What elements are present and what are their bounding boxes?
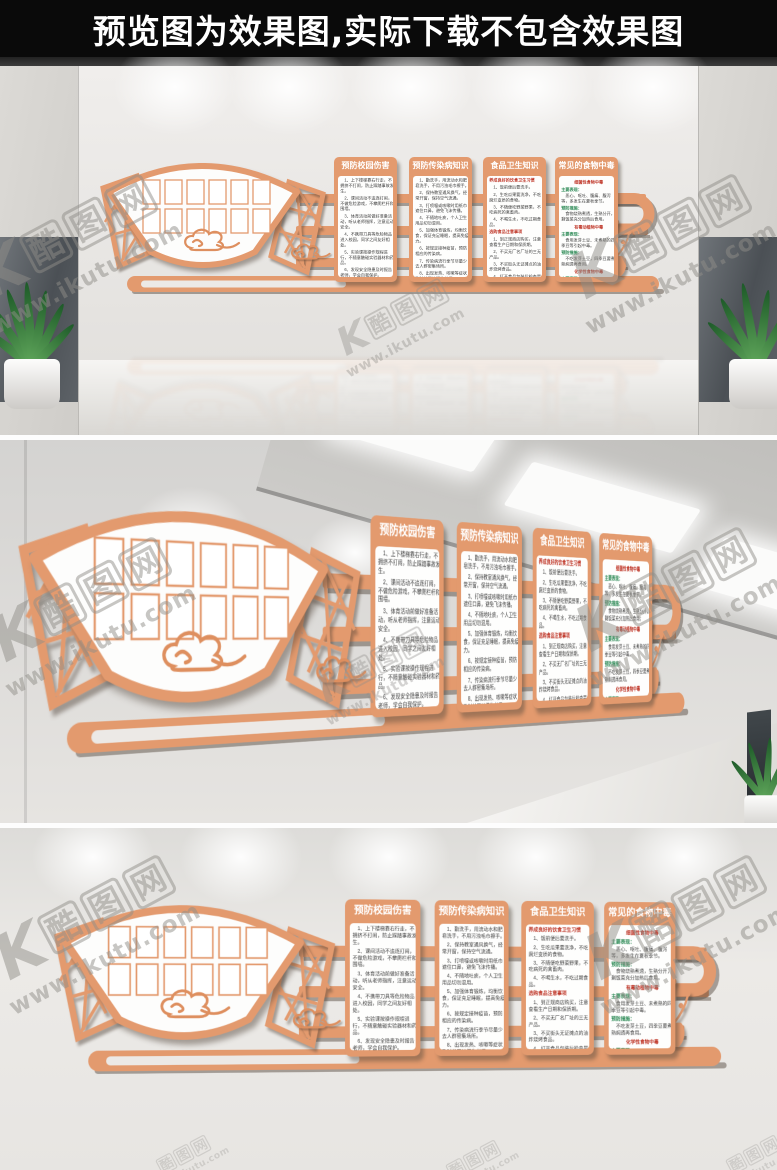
photo-placeholder [265,597,288,639]
wall-panel-4: 常见的食物中毒 细菌性食物中毒主要表现：恶心、呕吐、腹痛、腹泻等，多发生在夏秋季… [555,369,618,435]
photo-placeholder [253,180,270,204]
ceiling-light-panel [328,440,497,472]
wall-panel-body: 1、上下楼梯靠右行走，不拥挤不打闹，防止踩踏事故发生。2、课间活动不追逐打闹，不… [375,546,439,709]
wall-panel-title: 预防校园伤害 [370,515,443,550]
photo-placeholder [253,209,270,233]
plant-pot [729,359,777,409]
ceiling-light-glow [219,57,359,142]
photo-placeholder [109,964,131,995]
wall-panel-3: 食品卫生知识 养成良好的饮食卫生习惯1、饭前便后要洗手。2、生吃瓜果要洗净，不吃… [483,369,546,435]
photo-placeholder [231,209,248,233]
scene-front-view: K酷图网 www.ikutu.com K酷图网 www.ikutu.com K酷… [0,57,777,435]
plant-pot [4,359,60,409]
photo-placeholder [265,547,288,589]
wall-panel-title: 食品卫生知识 [483,157,546,176]
watermark: 酷图网 www.ikutu.com [712,1127,777,1170]
wall-panel-title: 常见的食物中毒 [555,157,618,176]
photo-placeholder [233,545,257,588]
photo-placeholder [253,418,270,435]
wall-panel-body: 1、勤洗手，用流动水和肥皂洗手，不用污浊毛巾擦手。2、保持教室通风换气，经常开窗… [461,551,518,705]
culture-wall: 预防校园伤害 1、上下楼梯靠右行走，不拥挤不打闹，防止踩踏事故发生。2、课间活动… [101,344,671,435]
photo-placeholder [192,927,213,958]
wall-panel-2: 预防传染病知识 1、勤洗手，用流动水和肥皂洗手，不用污浊毛巾擦手。2、保持教室通… [409,157,472,282]
photo-placeholder [143,418,160,435]
photo-placeholder [165,180,182,204]
wall-panel-4: 常见的食物中毒 细菌性食物中毒主要表现：恶心、呕吐、腹痛、腹泻等，多发生在夏秋季… [555,157,618,282]
photo-placeholder [246,927,267,958]
photo-placeholder [143,180,160,204]
wall-panel-body: 养成良好的饮食卫生习惯1、饭前便后要洗手。2、生吃瓜果要洗净，不吃腐烂变质的食物… [487,176,542,277]
wall-panel-title: 食品卫生知识 [533,528,592,559]
fan-shape [35,507,324,703]
photo-placeholder [209,180,226,204]
wall-panel-body: 1、勤洗手，用流动水和肥皂洗手，不用污浊毛巾擦手。2、保持教室通风换气，经常开窗… [413,374,468,435]
photo-placeholder [201,595,226,638]
wall-panel-3: 食品卫生知识 养成良好的饮食卫生习惯1、饭前便后要洗手。2、生吃瓜果要洗净，不吃… [521,901,594,1055]
wall-panel-title: 预防传染病知识 [409,157,472,176]
photo-placeholder [231,418,248,435]
wall-panel-title: 食品卫生知识 [521,901,594,925]
wall-panel-body: 1、上下楼梯靠右行走，不拥挤不打闹，防止踩踏事故发生。2、课间活动不追逐打闹，不… [338,176,393,277]
potted-plant-right [713,279,777,409]
photo-placeholder [192,964,213,995]
ikutu-logo-icon: K [0,913,49,989]
wall-panel-body: 1、上下楼梯靠右行走，不拥挤不打闹，防止踩踏事故发生。2、课间活动不追逐打闹，不… [350,923,416,1050]
wall-panel-body: 细菌性食物中毒主要表现：恶心、呕吐、腹痛、腹泻等，多发生在夏秋季节。预防措施：食… [609,925,671,1049]
photo-placeholder [167,541,193,586]
scene-perspective-view: K酷图网 www.ikutu.com K酷图网 www.ikutu.com K酷… [0,440,777,823]
photo-placeholder [95,593,124,639]
warning-banner-text: 预览图为效果图,实际下载不包含效果图 [93,5,685,53]
wall-panel-3: 食品卫生知识 养成良好的饮食卫生习惯1、饭前便后要洗手。2、生吃瓜果要洗净，不吃… [533,528,592,709]
section-divider [0,435,777,440]
wall-panel-title: 常见的食物中毒 [604,902,675,926]
photo-placeholder [132,594,159,639]
wall-panel-4: 常见的食物中毒 细菌性食物中毒主要表现：恶心、呕吐、腹痛、腹泻等，多发生在夏秋季… [599,533,652,705]
wall-panel-body: 1、上下楼梯靠右行走，不拥挤不打闹，防止踩踏事故发生。2、课间活动不追逐打闹，不… [338,374,393,435]
preview-page: 预览图为效果图,实际下载不包含效果图 [0,0,777,1170]
photo-placeholder [132,539,159,585]
fan-shape [65,908,300,1037]
wall-panel-body: 养成良好的饮食卫生习惯1、饭前便后要洗手。2、生吃瓜果要洗净，不吃腐烂变质的食物… [537,555,588,701]
warning-banner: 预览图为效果图,实际下载不包含效果图 [0,0,777,57]
watermark: 酷图网 www.ikutu.com [142,1127,231,1170]
photo-placeholder [231,180,248,204]
wall-panel-title: 预防校园伤害 [345,899,420,923]
wall-panel-title: 常见的食物中毒 [599,533,652,562]
photo-placeholder [246,964,267,995]
scene-angled-view: K酷图网 www.ikutu.com K酷图网 www.ikutu.com 酷图… [0,828,777,1170]
ceiling-light-panel [693,537,777,626]
wall-panel-2: 预防传染病知识 1、勤洗手，用流动水和肥皂洗手，不用污浊毛巾擦手。2、保持教室通… [457,522,522,713]
wall-panel-1: 预防校园伤害 1、上下楼梯靠右行走，不拥挤不打闹，防止踩踏事故发生。2、课间活动… [334,157,397,282]
wall-panel-2: 预防传染病知识 1、勤洗手，用流动水和肥皂洗手，不用污浊毛巾擦手。2、保持教室通… [435,900,509,1056]
wall-panel-body: 细菌性食物中毒主要表现：恶心、呕吐、腹痛、腹泻等，多发生在夏秋季节。预防措施：食… [559,374,614,435]
wall-panel-title: 预防传染病知识 [457,522,522,555]
wall-panel-body: 细菌性食物中毒主要表现：恶心、呕吐、腹痛、腹泻等，多发生在夏秋季节。预防措施：食… [603,559,649,698]
wall-panel-3: 食品卫生知识 养成良好的饮食卫生习惯1、饭前便后要洗手。2、生吃瓜果要洗净，不吃… [483,157,546,282]
photo-placeholder [209,418,226,435]
wall-panel-title: 预防传染病知识 [435,900,509,924]
wall-panel-body: 细菌性食物中毒主要表现：恶心、呕吐、腹痛、腹泻等，多发生在夏秋季节。预防措施：食… [559,176,614,277]
photo-placeholder [165,209,182,233]
watermark: 酷图网 www.ikutu.com [432,1132,521,1170]
wall-panel-body: 养成良好的饮食卫生习惯1、饭前便后要洗手。2、生吃瓜果要洗净，不吃腐烂变质的食物… [487,374,542,435]
ceiling-light-glow [341,57,481,142]
photo-placeholder [136,927,157,958]
wall-panel-body: 养成良好的饮食卫生习惯1、饭前便后要洗手。2、生吃瓜果要洗净，不吃腐烂变质的食物… [526,924,589,1049]
potted-plant-right [732,735,777,823]
photo-placeholder [95,537,124,584]
wall-panel-title: 预防校园伤害 [334,157,397,176]
photo-placeholder [201,543,226,587]
wall-panel-4: 常见的食物中毒 细菌性食物中毒主要表现：恶心、呕吐、腹痛、腹泻等，多发生在夏秋季… [604,902,675,1055]
photo-placeholder [136,964,157,995]
fan-shape [109,166,297,265]
photo-placeholder [209,209,226,233]
wall-panel-body: 1、勤洗手，用流动水和肥皂洗手，不用污浊毛巾擦手。2、保持教室通风换气，经常开窗… [439,924,504,1050]
photo-placeholder [187,180,204,204]
photo-placeholder [164,927,185,958]
photo-placeholder [109,927,131,958]
potted-plant-left [0,279,78,409]
culture-wall: 预防校园伤害 1、上下楼梯靠右行走，不拥挤不打闹，防止踩踏事故发生。2、课间活动… [101,152,671,307]
photo-placeholder [165,418,182,435]
photo-placeholder [219,927,240,958]
wall-panel-1: 预防校园伤害 1、上下楼梯靠右行走，不拥挤不打闹，防止踩踏事故发生。2、课间活动… [370,515,443,718]
ceiling-light-glow [462,57,602,142]
culture-wall: 预防校园伤害 1、上下楼梯靠右行走，不拥挤不打闹，防止踩踏事故发生。2、课间活动… [55,890,734,1092]
section-divider [0,823,777,828]
photo-placeholder [219,964,240,995]
photo-placeholder [233,596,257,638]
wall-panel-body: 1、勤洗手，用流动水和肥皂洗手，不用污浊毛巾擦手。2、保持教室通风换气，经常开窗… [413,176,468,277]
photo-placeholder [143,209,160,233]
wall-panel-2: 预防传染病知识 1、勤洗手，用流动水和肥皂洗手，不用污浊毛巾擦手。2、保持教室通… [409,369,472,435]
wall-panel-1: 预防校园伤害 1、上下楼梯靠右行走，不拥挤不打闹，防止踩踏事故发生。2、课间活动… [334,369,397,435]
wall-panel-1: 预防校园伤害 1、上下楼梯靠右行走，不拥挤不打闹，防止踩踏事故发生。2、课间活动… [345,899,420,1057]
